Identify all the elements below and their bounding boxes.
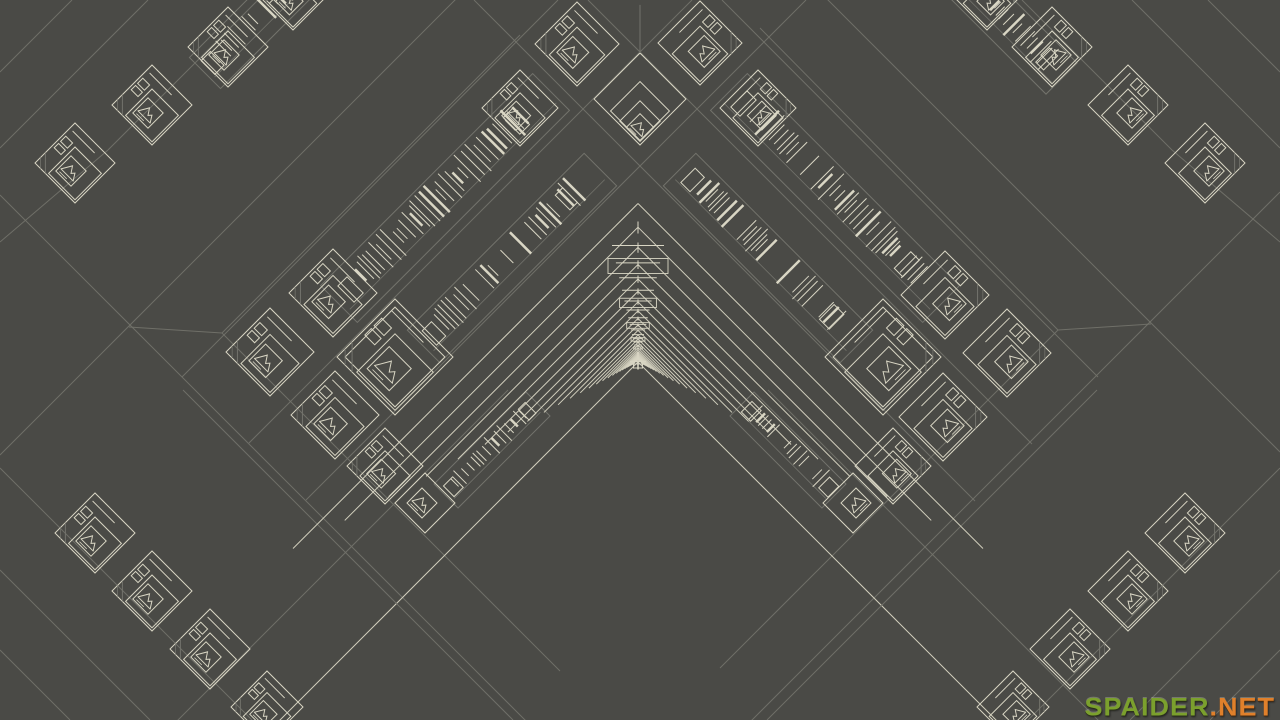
recursive-wireframe-scene xyxy=(0,0,1280,720)
watermark: SPAIDER.NET xyxy=(1084,695,1275,720)
watermark-brand-text: SPAIDER xyxy=(1084,693,1209,720)
watermark-tld-text: .NET xyxy=(1209,693,1275,720)
wireframe-art-canvas: SPAIDER.NET xyxy=(0,0,1280,720)
